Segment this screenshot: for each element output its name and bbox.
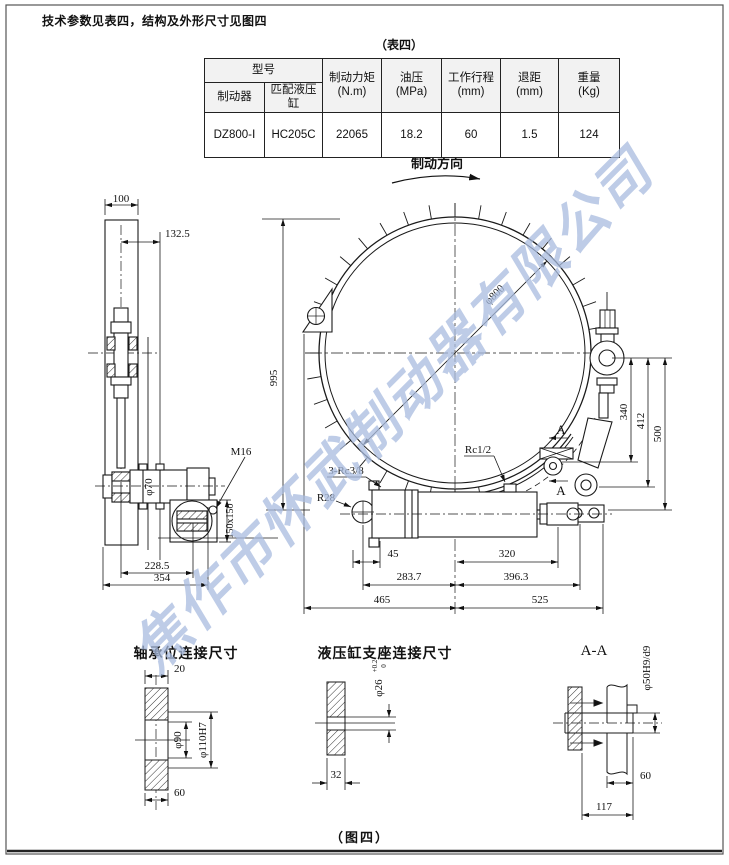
label-r28: R28: [317, 492, 336, 504]
direction-label: 制动方向: [411, 156, 463, 171]
dim-20: 20: [174, 663, 186, 675]
dim-flange: 150x150: [225, 504, 236, 539]
col-retreat: 退距 (mm): [501, 59, 559, 113]
dim-bearing-60: 60: [174, 787, 186, 799]
spec-table: 型号 制动力矩 (N.m) 油压 (MPa) 工作行程 (mm) 退距 (mm)…: [204, 58, 620, 158]
dim-283-7: 283.7: [397, 571, 422, 583]
dim-340: 340: [618, 403, 630, 420]
dim-525: 525: [532, 594, 549, 606]
dim-465: 465: [374, 594, 391, 606]
col-cylinder: 匹配液压缸: [265, 83, 323, 113]
section-aa-title: A-A: [581, 643, 608, 659]
dim-phi26: φ26: [373, 679, 385, 697]
dim-354: 354: [154, 572, 171, 584]
col-weight: 重量 (Kg): [559, 59, 620, 113]
dim-shaft-dia: φ70: [143, 478, 155, 496]
col-brake: 制动器: [205, 83, 265, 113]
support-detail-title: 液压缸支座连接尺寸: [318, 645, 453, 661]
dim-100: 100: [113, 193, 130, 205]
dim-412: 412: [635, 413, 647, 430]
section-aa-detail: [553, 685, 662, 820]
col-pressure: 油压 (MPa): [382, 59, 442, 113]
left-bracket: [303, 289, 332, 332]
dim-phi26-tol-dn: 0: [380, 664, 388, 668]
bearing-detail-title: 轴承位连接尺寸: [134, 645, 239, 661]
cell-retreat: 1.5: [501, 112, 559, 157]
dim-320: 320: [499, 548, 516, 560]
section-mark-a-bottom: A: [556, 483, 566, 498]
cell-stroke: 60: [442, 112, 501, 157]
label-3-rc38: 3-Rc3/8: [328, 465, 364, 477]
dim-45: 45: [388, 548, 400, 560]
dim-drum-dia: φ800: [483, 282, 508, 307]
dim-132-5: 132.5: [165, 228, 190, 240]
cell-cylinder-model: HC205C: [265, 112, 323, 157]
dim-phi90: φ90: [172, 731, 184, 749]
col-torque: 制动力矩 (N.m): [323, 59, 382, 113]
main-view-dimensions: [262, 219, 672, 614]
support-detail: [312, 682, 396, 790]
dim-phi26-tol-up: +0.2: [371, 659, 379, 672]
direction-arrow: [392, 176, 480, 183]
dim-32: 32: [331, 769, 342, 781]
left-side-view: [88, 220, 278, 560]
hydraulic-cylinder: [340, 481, 612, 547]
cell-torque: 22065: [323, 112, 382, 157]
dim-228-5: 228.5: [145, 560, 170, 572]
cell-brake-model: DZ800-Ⅰ: [205, 112, 265, 157]
col-stroke: 工作行程 (mm): [442, 59, 501, 113]
cell-weight: 124: [559, 112, 620, 157]
dim-500: 500: [652, 425, 664, 442]
document-page: 技术参数见表四，结构及外形尺寸见图四 （表四） （图四） 焦作市怀武制动器有限公…: [0, 0, 729, 865]
dim-396-3: 396.3: [504, 571, 529, 583]
cell-pressure: 18.2: [382, 112, 442, 157]
dim-phi50: φ50H9/d9: [641, 645, 653, 690]
dim-995: 995: [268, 369, 280, 386]
section-mark-a-top: A: [556, 422, 566, 437]
col-model: 型号: [205, 59, 323, 83]
label-m16: M16: [231, 446, 252, 458]
dim-phi110h7: φ110H7: [197, 722, 209, 758]
label-rc12: Rc1/2: [465, 444, 491, 456]
dim-section-60: 60: [640, 770, 652, 782]
dim-117: 117: [596, 801, 613, 813]
